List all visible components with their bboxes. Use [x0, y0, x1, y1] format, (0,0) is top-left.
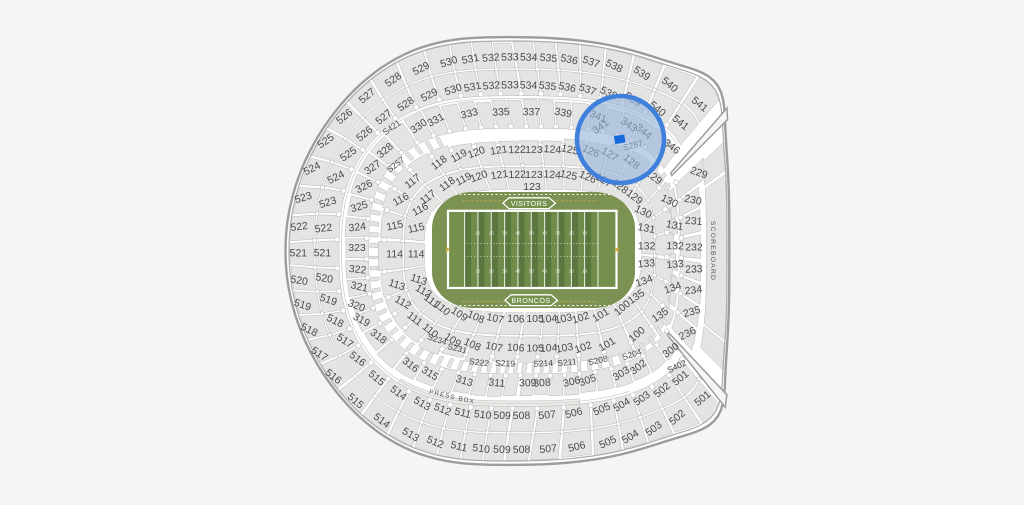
svg-text:534: 534	[520, 51, 538, 64]
svg-text:BRONCOS: BRONCOS	[511, 296, 550, 305]
svg-text:122: 122	[508, 144, 526, 157]
svg-text:323: 323	[348, 242, 366, 254]
svg-text:10: 10	[582, 231, 587, 236]
svg-text:123: 123	[523, 181, 541, 193]
svg-text:114: 114	[408, 248, 425, 260]
svg-text:VISITORS: VISITORS	[511, 199, 548, 208]
svg-text:50: 50	[529, 231, 534, 236]
svg-text:30: 30	[502, 269, 507, 274]
svg-text:30: 30	[556, 269, 561, 274]
svg-text:20: 20	[489, 269, 494, 274]
svg-text:30: 30	[556, 231, 561, 236]
svg-text:510: 510	[473, 408, 492, 422]
svg-text:507: 507	[538, 408, 557, 422]
svg-text:322: 322	[348, 263, 367, 277]
svg-text:122: 122	[508, 169, 526, 182]
svg-text:S211: S211	[557, 356, 577, 368]
svg-text:40: 40	[516, 231, 521, 236]
svg-text:535: 535	[538, 79, 557, 93]
svg-text:522: 522	[290, 220, 309, 234]
svg-text:SCOREBOARD: SCOREBOARD	[709, 221, 716, 281]
svg-text:233: 233	[685, 263, 703, 276]
svg-text:231: 231	[685, 215, 703, 228]
svg-text:40: 40	[516, 269, 521, 274]
svg-text:508: 508	[513, 444, 531, 456]
svg-text:40: 40	[542, 231, 547, 236]
svg-text:30: 30	[502, 231, 507, 236]
svg-text:20: 20	[489, 231, 494, 236]
svg-text:132: 132	[666, 240, 684, 252]
svg-text:521: 521	[289, 247, 307, 259]
svg-text:232: 232	[685, 241, 703, 253]
svg-text:132: 132	[638, 240, 656, 252]
svg-text:509: 509	[493, 410, 511, 423]
svg-text:234: 234	[684, 283, 703, 297]
svg-text:522: 522	[314, 222, 333, 236]
svg-text:50: 50	[529, 269, 534, 274]
svg-text:40: 40	[542, 269, 547, 274]
svg-text:124: 124	[543, 143, 562, 156]
svg-text:10: 10	[476, 231, 481, 236]
svg-text:133: 133	[666, 258, 685, 271]
svg-text:133: 133	[637, 257, 656, 270]
svg-text:309: 309	[519, 377, 537, 389]
svg-text:10: 10	[476, 269, 481, 274]
svg-text:534: 534	[520, 79, 538, 92]
svg-text:533: 533	[501, 79, 519, 91]
svg-text:20: 20	[569, 269, 574, 274]
svg-text:311: 311	[488, 376, 506, 389]
svg-text:106: 106	[507, 313, 525, 326]
svg-text:324: 324	[348, 220, 367, 234]
svg-text:509: 509	[493, 444, 511, 457]
svg-text:123: 123	[525, 144, 543, 156]
svg-text:507: 507	[539, 442, 558, 456]
svg-text:106: 106	[507, 342, 525, 355]
svg-text:521: 521	[314, 247, 332, 259]
svg-text:533: 533	[501, 51, 519, 63]
svg-text:510: 510	[472, 442, 491, 456]
svg-text:532: 532	[482, 79, 501, 92]
svg-text:532: 532	[482, 51, 501, 64]
svg-text:105: 105	[526, 313, 544, 325]
svg-text:114: 114	[386, 248, 403, 260]
svg-text:105: 105	[526, 342, 544, 354]
svg-text:535: 535	[539, 51, 558, 65]
svg-text:S214: S214	[533, 358, 554, 369]
svg-text:337: 337	[523, 106, 541, 118]
svg-text:508: 508	[513, 410, 531, 422]
svg-text:335: 335	[492, 106, 510, 119]
svg-text:S219: S219	[495, 358, 516, 369]
svg-text:123: 123	[525, 169, 543, 181]
svg-text:10: 10	[582, 269, 587, 274]
svg-text:20: 20	[569, 231, 574, 236]
